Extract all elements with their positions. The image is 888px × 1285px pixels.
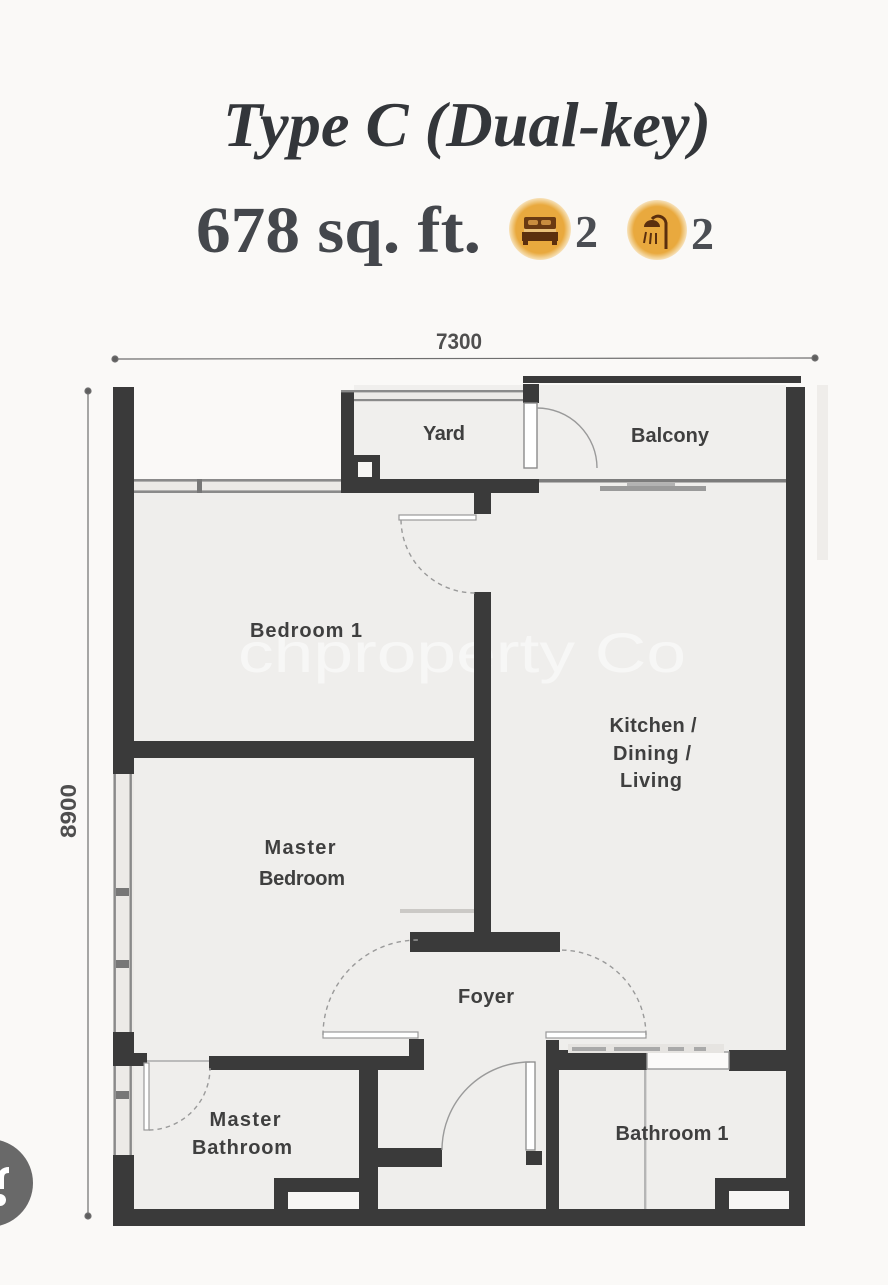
svg-text:8900: 8900 — [56, 784, 81, 838]
svg-text:Type C (Dual-key): Type C (Dual-key) — [223, 89, 711, 160]
svg-text:7300: 7300 — [436, 329, 482, 354]
svg-text:Living: Living — [620, 770, 682, 792]
svg-text:2: 2 — [691, 208, 714, 259]
svg-text:Kitchen /: Kitchen / — [610, 715, 697, 737]
svg-text:Balcony: Balcony — [631, 425, 710, 447]
svg-text:Bathroom 1: Bathroom 1 — [616, 1123, 729, 1145]
svg-text:Yard: Yard — [423, 423, 465, 445]
svg-text:678 sq. ft.: 678 sq. ft. — [196, 194, 481, 267]
svg-text:Bathroom: Bathroom — [192, 1137, 292, 1159]
svg-text:Master: Master — [210, 1109, 281, 1131]
svg-text:Dining /: Dining / — [613, 743, 691, 765]
svg-text:Master: Master — [265, 837, 336, 859]
svg-text:2: 2 — [575, 206, 598, 257]
svg-text:Foyer: Foyer — [458, 986, 514, 1008]
svg-text:Bedroom 1: Bedroom 1 — [250, 620, 362, 642]
svg-text:Bedroom: Bedroom — [259, 868, 345, 890]
